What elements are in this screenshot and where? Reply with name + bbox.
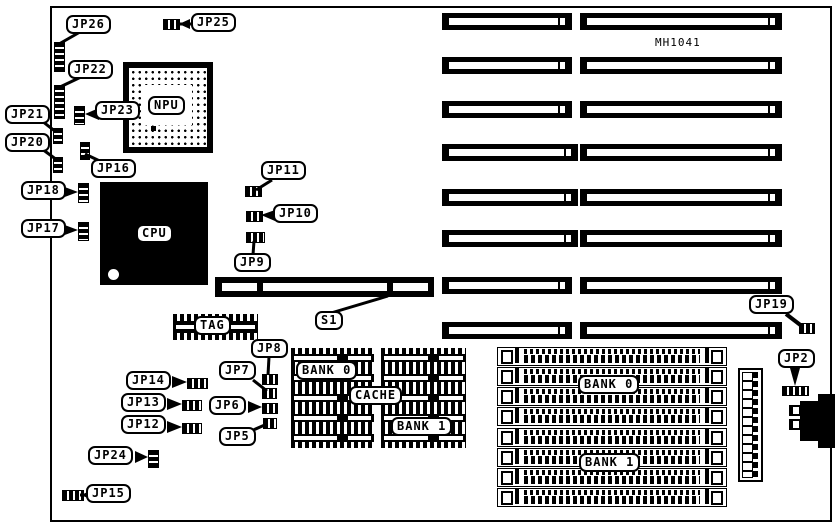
cpu-chip-label: CPU [136, 224, 173, 243]
jumper-label-jp22: JP22 [68, 60, 113, 79]
jumper-label-jp18: JP18 [21, 181, 66, 200]
jumper-label-jp24: JP24 [88, 446, 133, 465]
cache-bank0-label: BANK 0 [296, 361, 357, 380]
jumper-label-jp5: JP5 [219, 427, 256, 446]
jumper-label-jp9: JP9 [234, 253, 271, 272]
jumper-label-jp19: JP19 [749, 295, 794, 314]
jumper-label-jp13: JP13 [121, 393, 166, 412]
simm-bank0-label: BANK 0 [578, 375, 639, 394]
jumper-label-jp21: JP21 [5, 105, 50, 124]
s1-label: S1 [315, 311, 343, 330]
cache-bank1-label: BANK 1 [391, 417, 452, 436]
npu-chip-label: NPU [148, 96, 185, 115]
jumper-label-jp15: JP15 [86, 484, 131, 503]
jumper-label-jp11: JP11 [261, 161, 306, 180]
simm-bank1-label: BANK 1 [579, 453, 640, 472]
jumper-label-jp10: JP10 [273, 204, 318, 223]
tag-label: TAG [194, 316, 231, 335]
cache-label: CACHE [349, 386, 402, 405]
jumper-label-jp17: JP17 [21, 219, 66, 238]
jumper-label-jp14: JP14 [126, 371, 171, 390]
motherboard-diagram: MH1041 NPU CPU S1 TAG BANK 0 CACHE BANK … [0, 0, 836, 527]
jumper-label-jp26: JP26 [66, 15, 111, 34]
jumper-label-jp12: JP12 [121, 415, 166, 434]
jumper-label-jp16: JP16 [91, 159, 136, 178]
jumper-label-jp8: JP8 [251, 339, 288, 358]
jumper-label-jp23: JP23 [95, 101, 140, 120]
jumper-label-jp7: JP7 [219, 361, 256, 380]
jumper-label-jp6: JP6 [209, 396, 246, 415]
jumper-label-jp2: JP2 [778, 349, 815, 368]
jumper-label-jp20: JP20 [5, 133, 50, 152]
jumper-label-jp25: JP25 [191, 13, 236, 32]
